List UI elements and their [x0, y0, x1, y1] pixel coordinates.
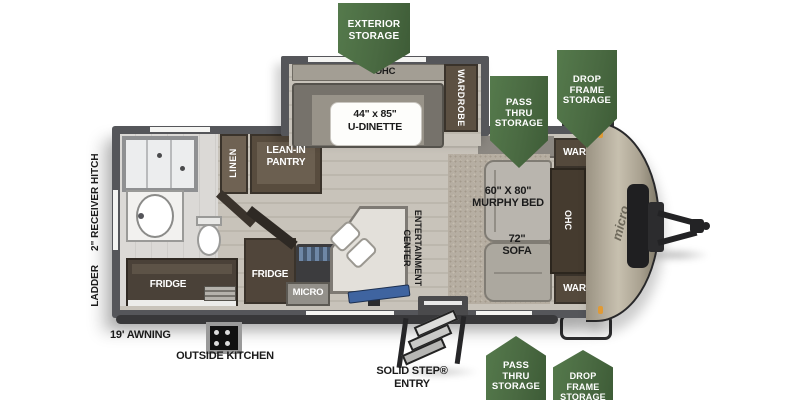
- badge-line: STORAGE: [486, 382, 546, 393]
- knob: [225, 330, 230, 335]
- badge-line: FRAME: [553, 382, 613, 392]
- shower-head: [180, 166, 185, 171]
- toilet: [197, 224, 221, 256]
- sofa-cushion-line: [494, 272, 542, 274]
- badge-line: PASS: [490, 98, 548, 109]
- linen-label: LINEN: [227, 138, 239, 188]
- cap-storage-door: [627, 184, 649, 268]
- shower: [122, 136, 198, 192]
- solid-step-label-line2: ENTRY: [352, 379, 472, 391]
- ladder-label: LADDER: [90, 265, 101, 307]
- sofa-name-label: SOFA: [487, 246, 547, 258]
- hitch-ball-socket: [702, 222, 710, 230]
- solid-step-label-line1: SOLID STEP®: [352, 366, 472, 378]
- faucet: [138, 213, 144, 219]
- marker-light-bottom: [598, 306, 603, 314]
- fridge-left-label: FRIDGE: [136, 280, 200, 291]
- entertainment-center-label: ENTERTAINMENT CENTER: [400, 204, 424, 292]
- badge-line: DROP: [557, 75, 617, 86]
- dinette-size-label: 44" x 85": [330, 109, 420, 120]
- window: [150, 127, 210, 132]
- pantry-label-line1: LEAN-IN: [252, 146, 320, 157]
- entry-steps: [398, 316, 468, 372]
- badge-line: STORAGE: [490, 119, 548, 130]
- pass-thru-storage-badge-bottom: PASS THRU STORAGE: [486, 336, 546, 400]
- awning-label: 19' AWNING: [110, 330, 190, 342]
- micro-label: MICRO: [286, 288, 330, 298]
- shower-glass-seam: [170, 140, 172, 188]
- pantry-label-line2: PANTRY: [252, 158, 320, 169]
- badge-line: PASS: [486, 361, 546, 372]
- drop-frame-storage-badge-bottom: DROP FRAME STORAGE: [553, 350, 613, 400]
- badge-line: DROP: [553, 371, 613, 381]
- threshold-strip: [424, 301, 462, 305]
- shower-drain: [157, 153, 162, 158]
- outside-kitchen-label: OUTSIDE KITCHEN: [150, 351, 300, 363]
- ladder-hitch-label: LADDER 2" RECEIVER HITCH: [89, 145, 101, 315]
- dinette-name-label: U-DINETTE: [330, 122, 420, 133]
- knob: [214, 341, 219, 346]
- window: [113, 190, 118, 250]
- wardrobe-label: WARDROBE: [455, 66, 467, 130]
- floorplan-canvas: OHC WARDROBE 44" x 85" U-DINETTE LINEN L…: [0, 0, 800, 400]
- badge-line: STORAGE: [553, 392, 613, 400]
- entertainment-line2: CENTER: [402, 229, 412, 266]
- step-rail-right: [455, 316, 467, 364]
- badge-line: EXTERIOR: [338, 19, 410, 31]
- knob: [214, 330, 219, 335]
- knob: [225, 341, 230, 346]
- receiver-hitch-label: 2" RECEIVER HITCH: [90, 153, 101, 251]
- badge-line: STORAGE: [338, 31, 410, 43]
- shower-glass-seam: [146, 140, 148, 188]
- front-ohc-label: OHC: [562, 203, 574, 237]
- slide-ohc-label: OHC: [292, 67, 478, 77]
- counter-edge: [132, 264, 232, 274]
- entertainment-line1: ENTERTAINMENT: [413, 210, 423, 286]
- badge-line: STORAGE: [557, 96, 617, 107]
- awning-bar: [116, 315, 558, 324]
- bed-name-label: MURPHY BED: [458, 198, 558, 210]
- vent-grill: [204, 286, 236, 301]
- fridge-right-label: FRIDGE: [244, 270, 296, 281]
